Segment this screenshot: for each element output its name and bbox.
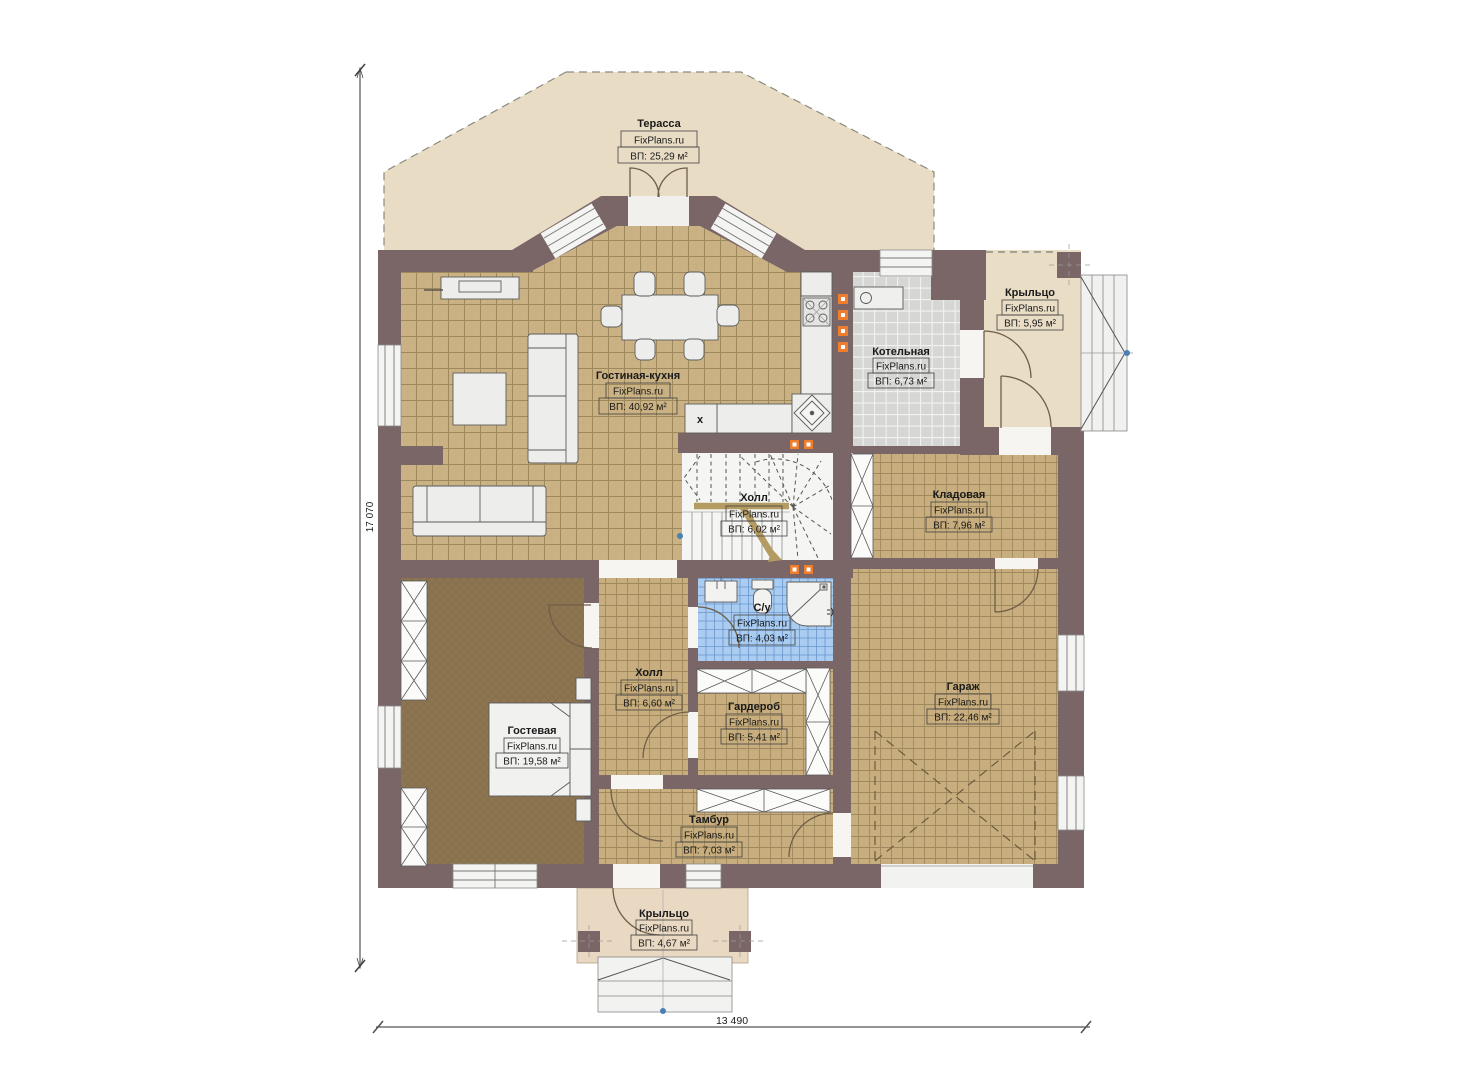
svg-text:FixPlans.ru: FixPlans.ru bbox=[634, 136, 684, 147]
svg-text:Котельная: Котельная bbox=[872, 346, 930, 358]
svg-text:FixPlans.ru: FixPlans.ru bbox=[624, 684, 674, 695]
svg-text:ВП: 40,92 м²: ВП: 40,92 м² bbox=[609, 402, 667, 413]
svg-text:ВП: 4,03 м²: ВП: 4,03 м² bbox=[736, 634, 789, 645]
svg-text:ВП: 6,60 м²: ВП: 6,60 м² bbox=[623, 699, 676, 710]
svg-text:Крыльцо: Крыльцо bbox=[1005, 287, 1055, 299]
svg-text:FixPlans.ru: FixPlans.ru bbox=[737, 619, 787, 630]
svg-text:С/у: С/у bbox=[753, 602, 771, 614]
svg-text:ВП: 25,29 м²: ВП: 25,29 м² bbox=[630, 152, 688, 163]
svg-text:Кладовая: Кладовая bbox=[933, 489, 986, 501]
svg-text:ВП: 7,03 м²: ВП: 7,03 м² bbox=[683, 846, 736, 857]
svg-text:FixPlans.ru: FixPlans.ru bbox=[729, 510, 779, 521]
svg-text:Крыльцо: Крыльцо bbox=[639, 908, 689, 920]
svg-text:ВП: 19,58 м²: ВП: 19,58 м² bbox=[503, 757, 561, 768]
svg-text:Холл: Холл bbox=[740, 492, 768, 504]
svg-text:Гостиная-кухня: Гостиная-кухня bbox=[596, 370, 680, 382]
svg-text:x: x bbox=[697, 414, 704, 426]
svg-text:Холл: Холл bbox=[635, 667, 663, 679]
svg-text:FixPlans.ru: FixPlans.ru bbox=[1005, 304, 1055, 315]
svg-text:ВП: 4,67 м²: ВП: 4,67 м² bbox=[638, 939, 691, 950]
svg-text:FixPlans.ru: FixPlans.ru bbox=[639, 924, 689, 935]
svg-text:ВП: 7,96 м²: ВП: 7,96 м² bbox=[933, 521, 986, 532]
svg-text:Гараж: Гараж bbox=[947, 681, 980, 693]
svg-text:ВП: 6,02 м²: ВП: 6,02 м² bbox=[728, 525, 781, 536]
svg-text:FixPlans.ru: FixPlans.ru bbox=[934, 506, 984, 517]
svg-text:ВП: 22,46 м²: ВП: 22,46 м² bbox=[934, 713, 992, 724]
svg-text:Терасса: Терасса bbox=[637, 118, 681, 130]
svg-text:FixPlans.ru: FixPlans.ru bbox=[684, 831, 734, 842]
svg-text:FixPlans.ru: FixPlans.ru bbox=[729, 718, 779, 729]
svg-text:FixPlans.ru: FixPlans.ru bbox=[613, 387, 663, 398]
svg-text:FixPlans.ru: FixPlans.ru bbox=[876, 362, 926, 373]
svg-text:FixPlans.ru: FixPlans.ru bbox=[938, 698, 988, 709]
svg-text:ВП: 5,41 м²: ВП: 5,41 м² bbox=[728, 733, 781, 744]
svg-text:13 490: 13 490 bbox=[716, 1015, 748, 1027]
svg-text:Тамбур: Тамбур bbox=[689, 814, 729, 826]
svg-text:Гардероб: Гардероб bbox=[728, 701, 780, 713]
svg-text:Гостевая: Гостевая bbox=[507, 725, 556, 737]
svg-text:17 070: 17 070 bbox=[365, 501, 376, 532]
svg-text:FixPlans.ru: FixPlans.ru bbox=[507, 742, 557, 753]
svg-text:ВП: 6,73 м²: ВП: 6,73 м² bbox=[875, 377, 928, 388]
svg-text:ВП: 5,95 м²: ВП: 5,95 м² bbox=[1004, 319, 1057, 330]
